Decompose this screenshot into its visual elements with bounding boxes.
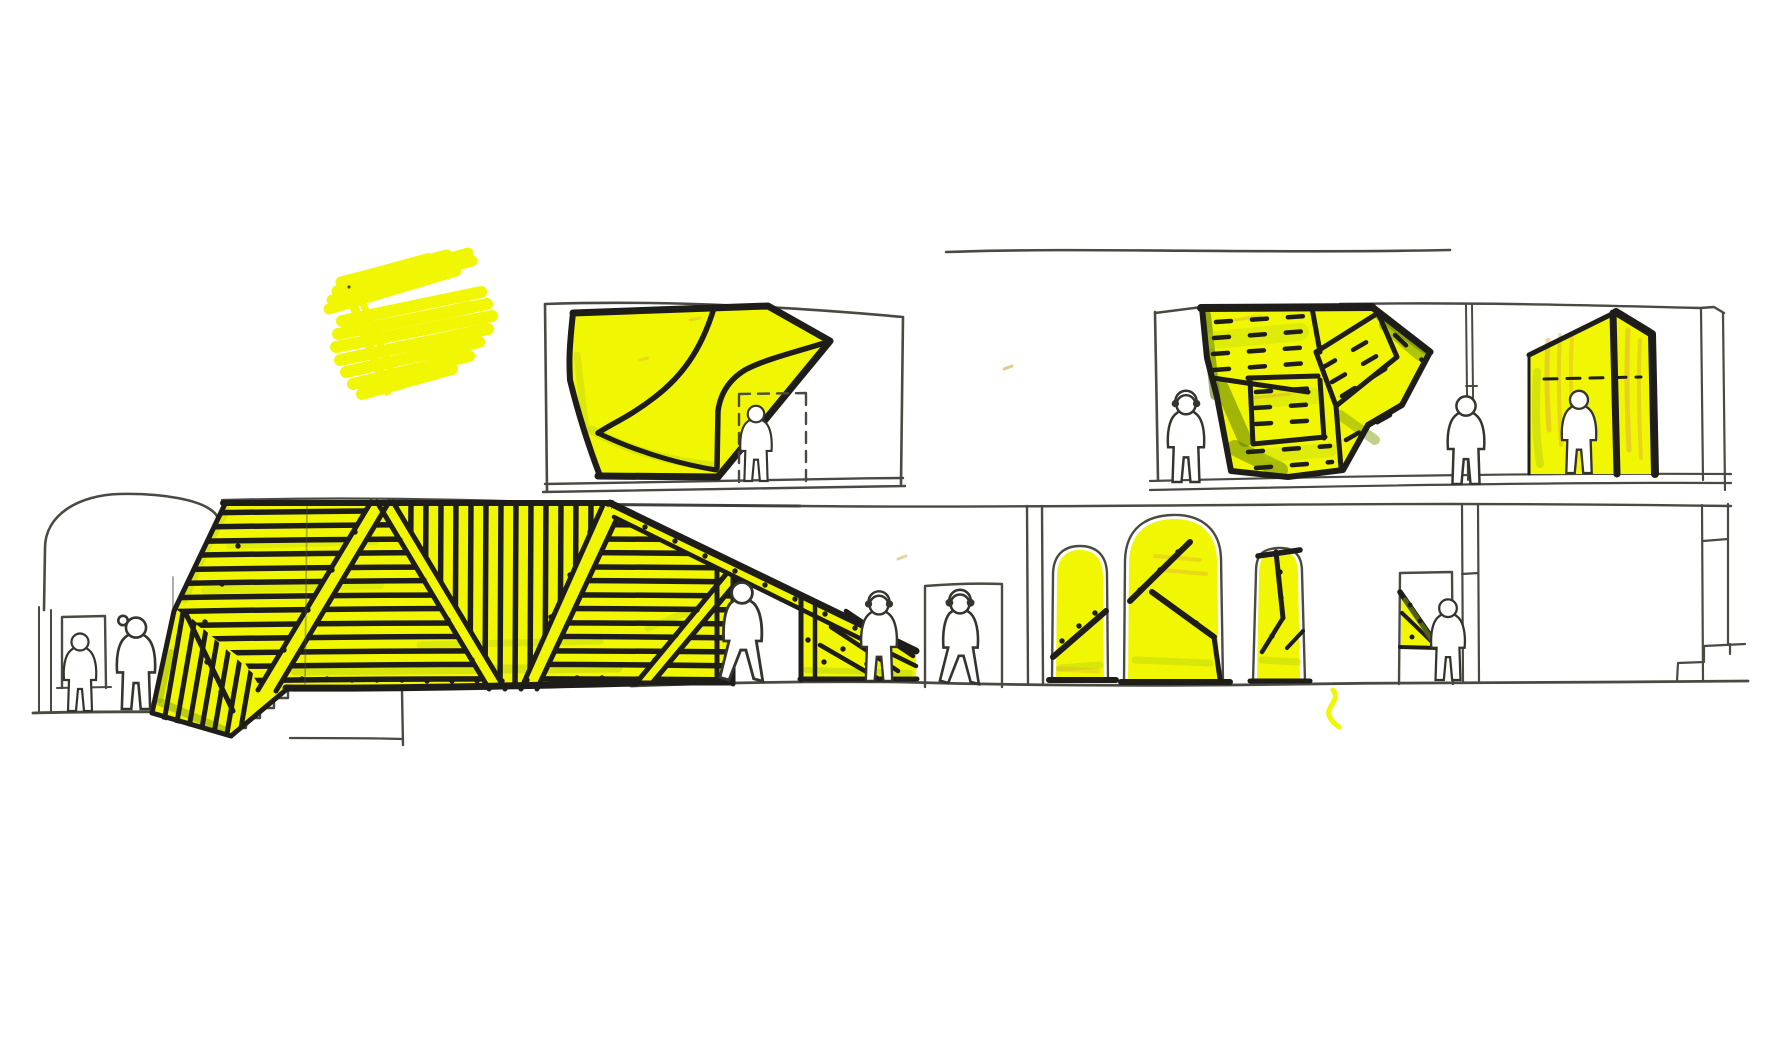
figure-left-room-1 <box>64 634 97 712</box>
sketch-page <box>0 0 1772 1052</box>
sun-scribble <box>329 253 492 394</box>
paper-specks <box>898 366 1012 559</box>
figure-gallery-right <box>1448 396 1485 484</box>
ground-squiggle <box>1329 690 1339 727</box>
upper-gallery-patchwork <box>1201 306 1430 477</box>
figure-right-doorway <box>1431 599 1465 680</box>
figure-center-doorway <box>940 590 979 684</box>
upper-left-vitrine <box>569 306 830 483</box>
paper-speck <box>347 285 350 288</box>
section-drawing <box>0 0 1772 1052</box>
roof-line <box>946 250 1450 252</box>
right-stairs <box>1677 644 1745 681</box>
ground-canopy <box>150 500 917 745</box>
figure-left-room-2 <box>117 616 155 709</box>
arcade <box>1049 515 1438 727</box>
figure-gallery-left <box>1168 391 1204 482</box>
